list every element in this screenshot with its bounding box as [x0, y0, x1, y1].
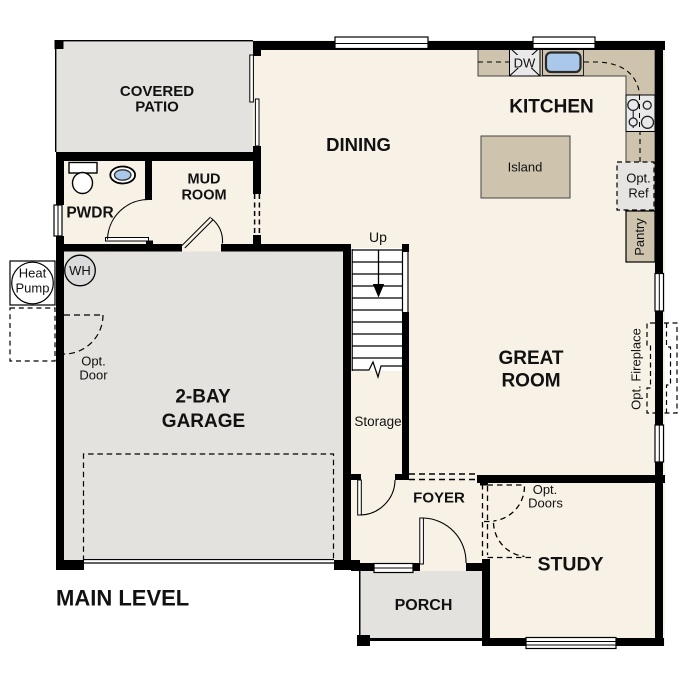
- svg-text:Storage: Storage: [354, 414, 401, 429]
- svg-text:KITCHEN: KITCHEN: [509, 97, 593, 118]
- svg-text:GARAGE: GARAGE: [162, 411, 245, 432]
- svg-text:PWDR: PWDR: [66, 205, 113, 222]
- svg-text:STUDY: STUDY: [537, 554, 603, 576]
- svg-text:ROOM: ROOM: [501, 371, 560, 392]
- svg-text:Ref: Ref: [628, 186, 649, 201]
- svg-text:Pantry: Pantry: [632, 218, 647, 256]
- svg-text:Up: Up: [369, 229, 387, 245]
- svg-text:Opt.: Opt.: [626, 171, 651, 186]
- svg-text:Door: Door: [79, 368, 108, 383]
- svg-text:COVERED: COVERED: [120, 83, 194, 100]
- svg-text:PATIO: PATIO: [135, 99, 179, 116]
- svg-text:2-BAY: 2-BAY: [175, 387, 231, 408]
- svg-text:MAIN LEVEL: MAIN LEVEL: [56, 586, 189, 611]
- svg-text:MUD: MUD: [187, 172, 220, 188]
- svg-text:Island: Island: [508, 160, 543, 175]
- svg-text:Opt. Fireplace: Opt. Fireplace: [629, 328, 644, 410]
- svg-text:PORCH: PORCH: [395, 597, 453, 614]
- svg-text:Pump: Pump: [16, 281, 50, 296]
- svg-text:Heat: Heat: [19, 266, 47, 281]
- svg-text:GREAT: GREAT: [498, 348, 563, 369]
- svg-text:Doors: Doors: [528, 496, 563, 511]
- svg-text:ROOM: ROOM: [181, 188, 226, 204]
- svg-text:FOYER: FOYER: [413, 490, 465, 507]
- svg-text:DW: DW: [514, 56, 536, 71]
- svg-text:DINING: DINING: [326, 134, 391, 155]
- svg-text:WH: WH: [69, 263, 91, 278]
- svg-text:Opt.: Opt.: [81, 354, 106, 369]
